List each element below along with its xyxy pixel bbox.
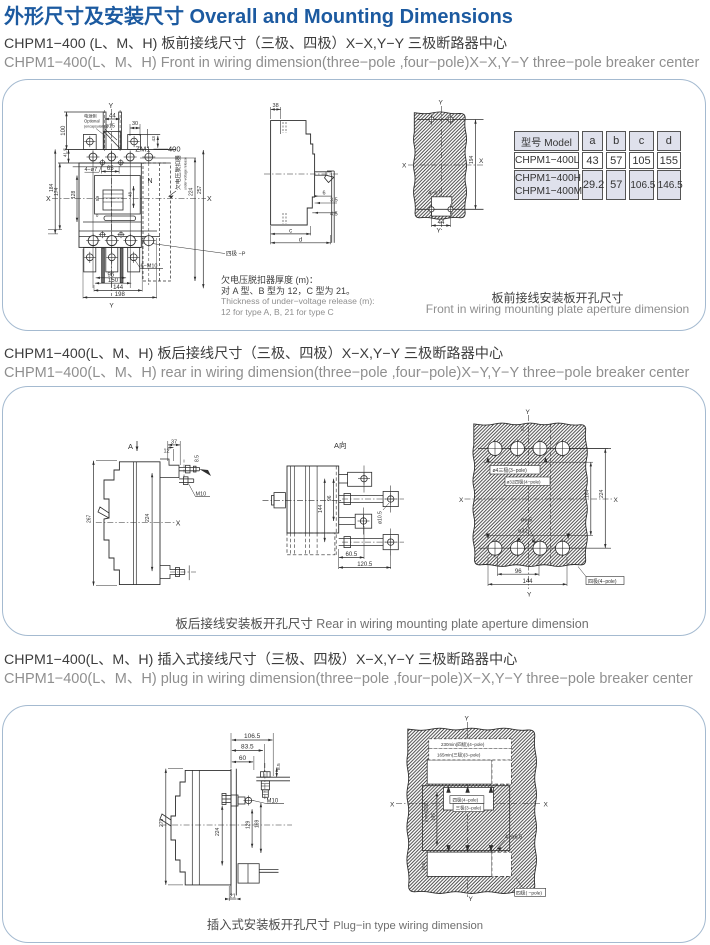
svg-text:X: X xyxy=(614,497,619,504)
svg-text:144: 144 xyxy=(318,504,324,513)
svg-text:43: 43 xyxy=(151,136,157,142)
svg-text:(min)(四极): (min)(四极) xyxy=(423,801,430,822)
svg-text:400: 400 xyxy=(168,145,181,154)
svg-text:194: 194 xyxy=(469,155,475,164)
svg-text:Y: Y xyxy=(526,409,531,416)
svg-text:44: 44 xyxy=(109,114,116,120)
svg-text:267: 267 xyxy=(87,514,93,523)
svg-text:c: c xyxy=(289,228,292,234)
svg-text:128: 128 xyxy=(71,190,77,199)
svg-text:X: X xyxy=(402,163,407,170)
svg-text:X: X xyxy=(544,802,549,809)
svg-text:135: 135 xyxy=(430,813,436,821)
svg-text:165min(三极)(3−pole): 165min(三极)(3−pole) xyxy=(437,752,481,759)
svg-text:96: 96 xyxy=(327,495,333,501)
svg-text:ø10.5: ø10.5 xyxy=(378,511,384,524)
svg-text:3.5: 3.5 xyxy=(330,198,338,204)
svg-text:X: X xyxy=(46,196,51,203)
svg-text:4.5: 4.5 xyxy=(330,212,338,218)
svg-text:8.5: 8.5 xyxy=(195,455,201,462)
svg-text:96: 96 xyxy=(515,569,522,575)
svg-text:Y: Y xyxy=(469,896,474,903)
svg-text:ø6.5: ø6.5 xyxy=(521,518,532,524)
svg-text:ø32: ø32 xyxy=(518,529,527,535)
svg-text:Y: Y xyxy=(437,228,442,235)
svg-text:6: 6 xyxy=(323,191,326,197)
svg-text:44: 44 xyxy=(438,220,445,226)
svg-text:30: 30 xyxy=(132,121,138,127)
svg-text:4−ø6.5: 4−ø6.5 xyxy=(505,835,522,841)
svg-text:ZM1: ZM1 xyxy=(135,145,150,154)
svg-text:ø32四极(4−pole): ø32四极(4−pole) xyxy=(507,479,542,486)
svg-text:106.5: 106.5 xyxy=(244,733,261,740)
svg-text:under-voltage release: under-voltage release xyxy=(184,157,188,190)
svg-text:Y: Y xyxy=(439,100,444,107)
svg-text:65: 65 xyxy=(107,166,114,172)
svg-text:60.5: 60.5 xyxy=(346,552,358,558)
svg-text:224: 224 xyxy=(599,489,605,498)
svg-text:8.5: 8.5 xyxy=(276,763,282,770)
svg-text:279: 279 xyxy=(159,818,165,827)
svg-text:(8.5): (8.5) xyxy=(421,861,426,870)
svg-text:230min(四极)(4−pole): 230min(四极)(4−pole) xyxy=(441,741,485,748)
svg-text:89: 89 xyxy=(95,195,100,201)
svg-text:144: 144 xyxy=(113,285,124,291)
svg-text:X: X xyxy=(390,802,395,809)
svg-text:X: X xyxy=(207,196,212,203)
svg-text:Optional: Optional xyxy=(84,119,100,124)
svg-text:≥3: ≥3 xyxy=(520,426,525,431)
svg-text:X: X xyxy=(479,158,484,165)
svg-text:Y: Y xyxy=(527,592,532,599)
svg-text:198: 198 xyxy=(115,292,126,298)
svg-text:Y: Y xyxy=(109,303,114,310)
svg-text:257: 257 xyxy=(197,185,203,194)
svg-text:41.5: 41.5 xyxy=(63,148,68,157)
svg-text:A: A xyxy=(128,442,133,451)
svg-text:A向: A向 xyxy=(334,440,347,450)
svg-text:d: d xyxy=(299,237,302,243)
svg-text:Y: Y xyxy=(109,103,114,110)
svg-text:224: 224 xyxy=(145,513,151,522)
svg-text:4−ø7: 4−ø7 xyxy=(428,191,441,197)
svg-text:四极( −pole): 四极( −pole) xyxy=(516,890,542,897)
svg-text:83.5: 83.5 xyxy=(241,744,254,751)
svg-text:224: 224 xyxy=(215,827,221,836)
svg-text:四极 −P: 四极 −P xyxy=(226,250,246,258)
svg-text:ø4三极(3−pole): ø4三极(3−pole) xyxy=(493,467,528,474)
svg-text:38: 38 xyxy=(273,103,279,109)
svg-text:100: 100 xyxy=(61,125,67,136)
svg-text:N: N xyxy=(148,178,153,185)
svg-text:X: X xyxy=(176,521,181,528)
svg-text:三极(3−pole): 三极(3−pole) xyxy=(456,805,482,812)
svg-text:169: 169 xyxy=(254,819,260,828)
svg-text:四极(4−pole): 四极(4−pole) xyxy=(453,797,479,804)
svg-text:21: 21 xyxy=(230,894,236,900)
svg-text:四极(4−pole): 四极(4−pole) xyxy=(588,578,617,585)
svg-text:ø15: ø15 xyxy=(106,124,115,130)
svg-text:164: 164 xyxy=(584,489,590,498)
svg-text:144: 144 xyxy=(522,579,533,585)
svg-text:Y: Y xyxy=(465,716,470,723)
svg-text:12: 12 xyxy=(164,448,170,454)
svg-text:欠电压脱扣器: 欠电压脱扣器 xyxy=(174,155,182,190)
svg-text:129: 129 xyxy=(246,820,252,829)
svg-text:120.5: 120.5 xyxy=(357,562,373,568)
svg-text:X: X xyxy=(459,497,464,504)
svg-text:(encapsulated): (encapsulated) xyxy=(84,125,108,129)
svg-text:224: 224 xyxy=(189,187,195,196)
svg-text:150: 150 xyxy=(108,278,119,284)
svg-text:174: 174 xyxy=(54,187,60,196)
svg-text:37: 37 xyxy=(171,439,177,445)
svg-text:60: 60 xyxy=(239,755,247,762)
